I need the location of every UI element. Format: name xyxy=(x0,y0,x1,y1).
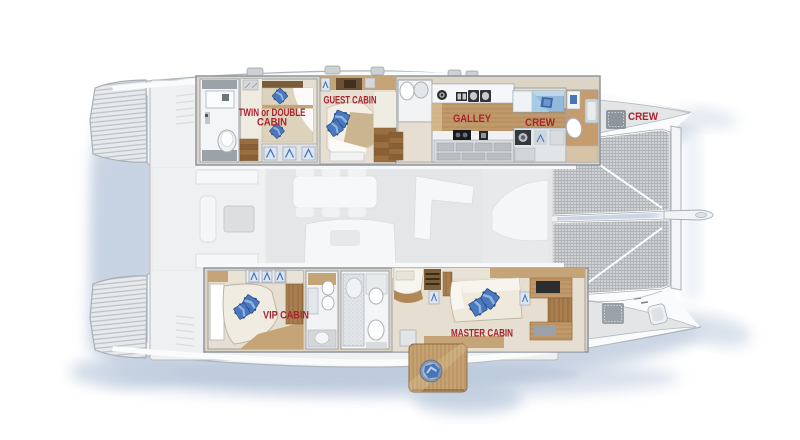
svg-text:CABIN: CABIN xyxy=(257,117,287,129)
svg-text:MASTER CABIN: MASTER CABIN xyxy=(451,328,513,340)
svg-text:VIP CABIN: VIP CABIN xyxy=(263,310,309,322)
svg-text:CREW: CREW xyxy=(525,117,556,129)
svg-text:CREW: CREW xyxy=(628,111,659,123)
svg-text:GUEST CABIN: GUEST CABIN xyxy=(324,95,377,107)
svg-text:GALLEY: GALLEY xyxy=(453,113,492,125)
